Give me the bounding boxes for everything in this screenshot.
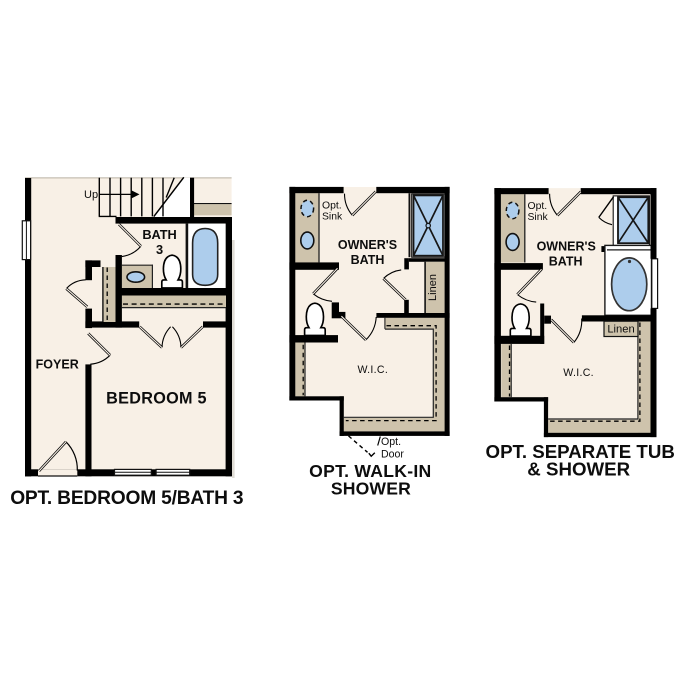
svg-text:Sink: Sink xyxy=(322,211,343,222)
svg-text:W.I.C.: W.I.C. xyxy=(563,367,594,379)
svg-text:BATH: BATH xyxy=(351,253,385,267)
svg-text:FOYER: FOYER xyxy=(36,357,79,371)
svg-text:Opt.: Opt. xyxy=(322,201,342,212)
svg-text:Door: Door xyxy=(381,448,404,460)
svg-text:SHOWER: SHOWER xyxy=(331,479,411,499)
svg-text:W.I.C.: W.I.C. xyxy=(357,364,388,376)
svg-text:BATH: BATH xyxy=(142,227,176,242)
svg-text:Linen: Linen xyxy=(427,274,439,301)
svg-text:OPT. BEDROOM 5/BATH 3: OPT. BEDROOM 5/BATH 3 xyxy=(10,488,243,509)
svg-text:OWNER'S: OWNER'S xyxy=(338,238,397,252)
svg-text:OWNER'S: OWNER'S xyxy=(537,240,596,254)
svg-text:Opt.: Opt. xyxy=(528,201,548,212)
svg-text:BEDROOM 5: BEDROOM 5 xyxy=(106,389,207,407)
svg-text:Opt.: Opt. xyxy=(381,436,401,448)
svg-text:3: 3 xyxy=(156,242,163,257)
svg-text:Up: Up xyxy=(84,189,98,201)
svg-text:Linen: Linen xyxy=(607,323,634,335)
svg-text:Sink: Sink xyxy=(528,212,549,223)
svg-text:& SHOWER: & SHOWER xyxy=(527,459,630,480)
svg-text:BATH: BATH xyxy=(549,254,583,268)
